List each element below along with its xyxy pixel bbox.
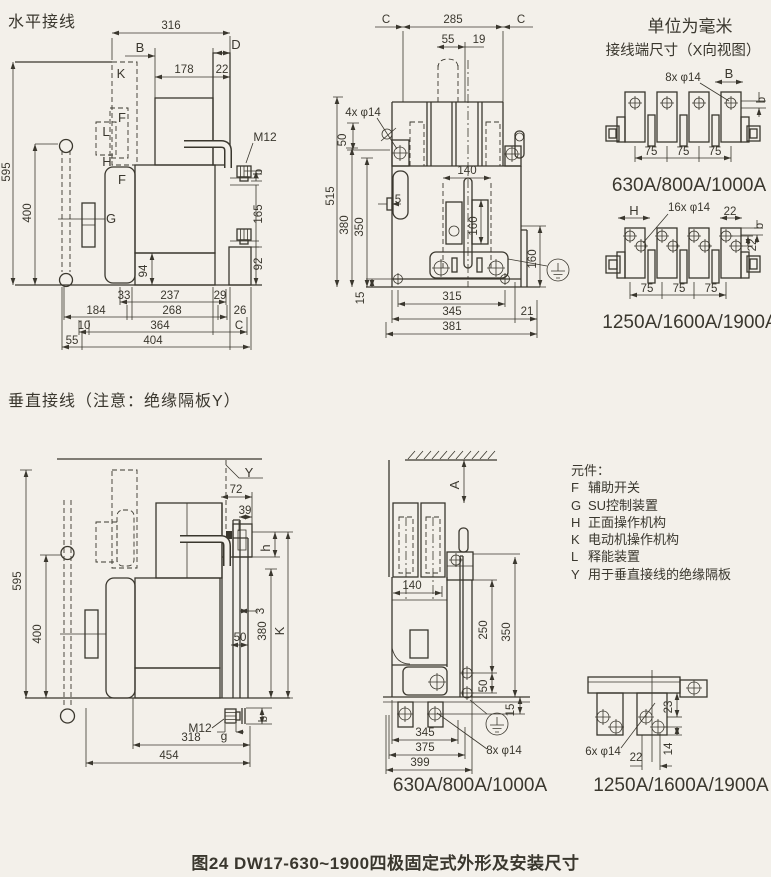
section-title-horizontal: 水平接线 [8, 8, 76, 32]
m12-bolt [225, 709, 240, 723]
pole-end [61, 709, 75, 723]
dim-label: K [272, 626, 287, 635]
dim-label: 595 [12, 571, 24, 590]
dim-label: H [102, 154, 111, 169]
dim-label: g [221, 729, 228, 743]
dim-label: C [235, 320, 243, 332]
mounting-hole [432, 259, 450, 277]
terminal-dimension-note: 接线端尺寸（X向视图） [595, 39, 771, 60]
dim-label: 23 [663, 701, 675, 714]
legend-item: K电动机操作机构 [571, 531, 731, 548]
dim-label: L [102, 124, 109, 139]
dim-label: 8x φ14 [665, 72, 701, 84]
dim-label: 16x φ14 [668, 202, 711, 214]
figure-caption: 图24 DW17-630~1900四极固定式外形及安装尺寸 [0, 849, 771, 874]
dim-label: K [117, 66, 126, 81]
dim-label: A [447, 480, 462, 489]
pole-end [60, 140, 73, 153]
dim-label: 316 [161, 20, 180, 32]
foot-hole [392, 273, 404, 285]
dim-label: D [231, 37, 240, 52]
dim-label: 75 [641, 283, 654, 295]
technical-drawing-page: 316BD17822KFLHFGM1259540094b165923323729… [0, 0, 771, 877]
units-note: 单位为毫米 [605, 12, 771, 37]
dim-label: 75 [709, 146, 722, 158]
dim-label: 375 [415, 742, 434, 754]
vertical-mount-view [383, 451, 530, 774]
dim-label: 380 [339, 215, 351, 234]
dim-label: 345 [442, 306, 461, 318]
dim-label: 315 [442, 291, 461, 303]
dim-label: 399 [410, 757, 429, 769]
dim-label: 140 [457, 165, 476, 177]
dim-label: 33 [118, 290, 131, 302]
dim-label: 5 [395, 194, 401, 206]
dim-label: 345 [415, 727, 434, 739]
component-legend: 元件： F辅助开关 GSU控制装置 H正面操作机构 K电动机操作机构 L释能装置… [571, 462, 731, 583]
dim-label: C [517, 14, 525, 26]
drawing-canvas: 316BD17822KFLHFGM1259540094b165923323729… [0, 0, 771, 877]
dim-label: 75 [677, 146, 690, 158]
dim-label: F [118, 172, 126, 187]
mounting-hole [392, 145, 408, 161]
dim-label: 22 [724, 206, 737, 218]
dim-label: 364 [150, 320, 170, 332]
mounting-hole [504, 146, 520, 162]
dim-label: 160 [468, 216, 480, 235]
dim-label: Y [245, 465, 254, 480]
dim-label: 22 [630, 752, 643, 764]
dim-label: 94 [138, 264, 150, 277]
dim-label: C [382, 14, 390, 26]
dim-label: 15 [355, 292, 367, 305]
legend-item: L释能装置 [571, 548, 731, 565]
dim-label: 26 [234, 305, 247, 317]
dim-label: 50 [478, 680, 490, 693]
dim-label: b [253, 169, 265, 175]
dim-label: 1250A/1600A/1900A [602, 312, 771, 333]
pole-end [61, 547, 74, 560]
dim-label: F [118, 110, 126, 125]
dim-label: 285 [443, 14, 462, 26]
insulation-plate-edge [459, 528, 468, 552]
dim-label: 250 [478, 620, 490, 639]
dim-label: 75 [673, 283, 686, 295]
dim-label: 454 [159, 750, 179, 762]
dim-label: 55 [442, 34, 455, 46]
foot-hole [499, 273, 511, 285]
legend-item: F辅助开关 [571, 479, 731, 496]
legend-item: Y用于垂直接线的绝缘隔板 [571, 566, 731, 583]
dim-label: 22 [216, 64, 229, 76]
dim-label: 72 [230, 484, 243, 496]
legend-item: GSU控制装置 [571, 497, 731, 514]
dim-label: B [725, 66, 734, 81]
dim-label: 178 [174, 64, 193, 76]
m12-bolt-upper [237, 166, 251, 181]
dim-label: 350 [501, 622, 513, 641]
dim-label: 55 [66, 335, 79, 347]
dim-label: 630A/800A/1000A [393, 775, 548, 796]
dim-label: 75 [705, 283, 718, 295]
dim-label: 39 [239, 505, 252, 517]
dim-label: b [754, 223, 766, 229]
dim-label: 237 [160, 290, 179, 302]
dim-label: 15 [505, 704, 517, 717]
motor-operator-K [112, 470, 137, 568]
front-cover-H [106, 578, 135, 698]
dim-label: 404 [143, 335, 163, 347]
dim-label: b [258, 716, 270, 722]
dim-label: 6x φ14 [585, 746, 621, 758]
dim-label: 50 [337, 134, 349, 147]
dim-label: 4x φ14 [345, 107, 381, 119]
dim-label: 160 [527, 249, 539, 268]
dim-label: 92 [253, 258, 265, 271]
section-title-vertical: 垂直接线（注意：绝缘隔板Y） [8, 387, 241, 411]
dim-label: 318 [181, 732, 200, 744]
dim-label: 29 [214, 290, 227, 302]
dim-label: h [258, 544, 273, 551]
dim-label: 515 [325, 186, 337, 205]
dim-label: 400 [22, 203, 34, 222]
dim-label: 8x φ14 [486, 745, 522, 757]
dim-label: 1250A/1600A/1900A [593, 775, 769, 796]
dim-label: M12 [253, 130, 277, 144]
earth-symbol [547, 259, 569, 281]
legend-title: 元件： [571, 462, 731, 479]
horizontal-side-view [13, 33, 262, 350]
dim-label: B [136, 40, 145, 55]
dim-label: 22 [747, 239, 759, 252]
dim-label: 381 [442, 321, 461, 333]
dim-label: 21 [521, 306, 534, 318]
dim-label: 184 [86, 305, 106, 317]
dim-label: G [106, 211, 116, 226]
vertical-side-view [20, 459, 293, 767]
m12-bolt-lower [237, 229, 251, 244]
dim-label: 3 [255, 608, 267, 614]
legend-item: H正面操作机构 [571, 514, 731, 531]
dim-label: 380 [257, 621, 269, 640]
wall-hatch [408, 451, 495, 459]
dim-label: 140 [402, 580, 421, 592]
dim-label: 19 [473, 34, 486, 46]
dim-label: 50 [234, 632, 247, 644]
dim-label: 595 [1, 162, 13, 181]
dim-label: 10 [78, 320, 91, 332]
dim-label: b [756, 97, 768, 103]
dim-label: 268 [162, 305, 181, 317]
dim-label: 165 [253, 204, 265, 223]
dim-label: 350 [354, 217, 366, 236]
dim-label: 630A/800A/1000A [612, 175, 767, 196]
dim-label: 14 [663, 742, 675, 755]
dim-label: 75 [645, 146, 658, 158]
release-device-L [96, 522, 117, 562]
mounting-hole [487, 259, 505, 277]
dim-label: H [629, 203, 638, 218]
dim-label: 400 [32, 624, 44, 643]
